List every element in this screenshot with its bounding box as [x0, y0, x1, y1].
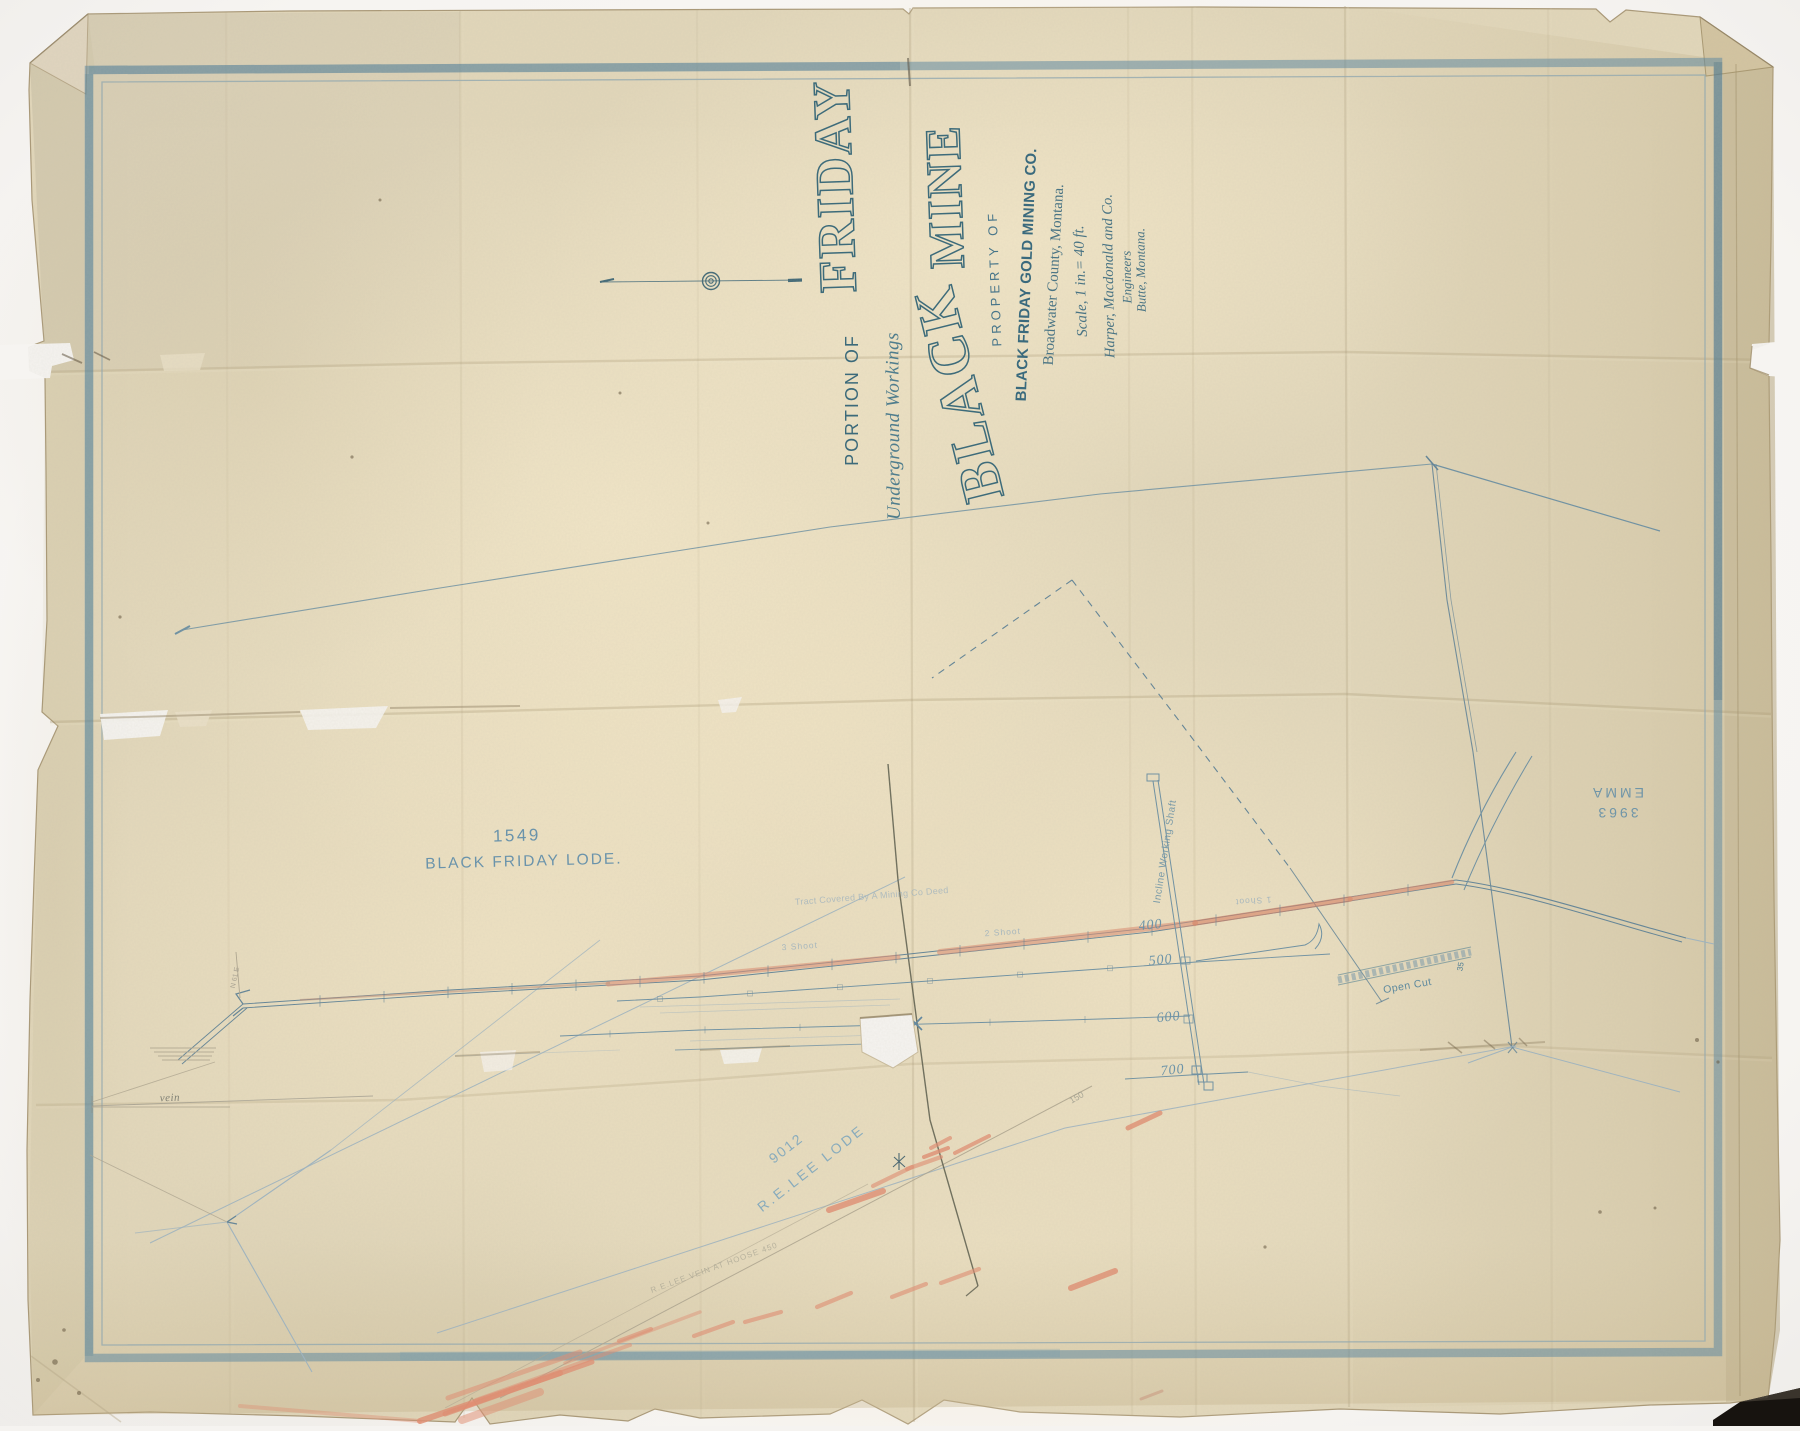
svg-text:400: 400 — [1138, 917, 1163, 934]
svg-text:Underground Workings: Underground Workings — [882, 332, 905, 520]
svg-text:600: 600 — [1156, 1009, 1181, 1026]
svg-text:Butte, Montana.: Butte, Montana. — [1132, 228, 1148, 312]
svg-text:1549: 1549 — [493, 825, 541, 845]
svg-text:Harper, Macdonald and Co.: Harper, Macdonald and Co. — [1100, 194, 1119, 359]
svg-text:700: 700 — [1160, 1062, 1185, 1079]
svg-text:EMMA: EMMA — [1590, 785, 1644, 801]
svg-text:3963: 3963 — [1595, 805, 1638, 821]
svg-text:FRIDAY: FRIDAY — [803, 78, 868, 293]
svg-text:500: 500 — [1148, 952, 1173, 969]
svg-text:PORTION OF: PORTION OF — [842, 334, 862, 466]
svg-text:vein: vein — [160, 1092, 181, 1105]
svg-text:MINE: MINE — [914, 124, 975, 270]
